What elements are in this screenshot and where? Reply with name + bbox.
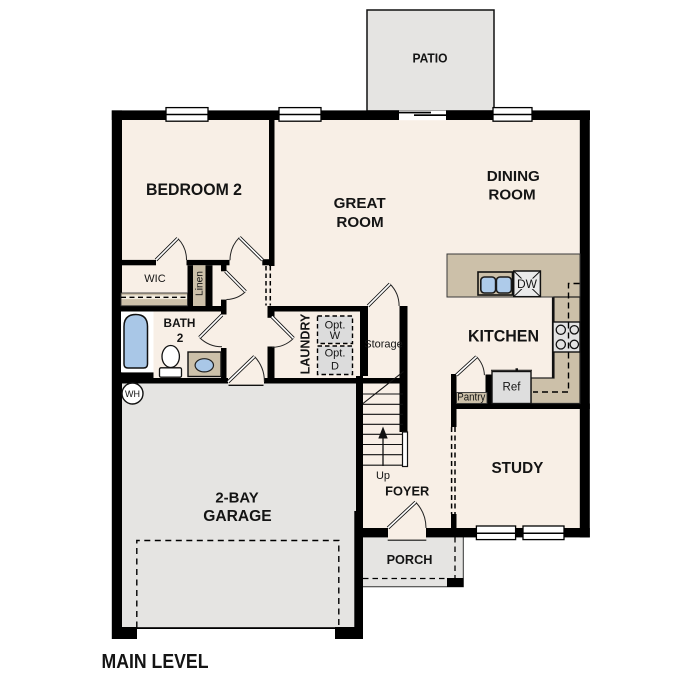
svg-text:2-BAY: 2-BAY — [215, 491, 258, 507]
svg-text:Ref: Ref — [503, 382, 522, 394]
svg-text:Linen: Linen — [194, 271, 205, 296]
svg-text:Up: Up — [376, 470, 390, 482]
svg-text:PATIO: PATIO — [413, 52, 448, 66]
svg-text:FOYER: FOYER — [385, 484, 429, 499]
svg-text:STUDY: STUDY — [491, 460, 543, 477]
svg-text:MAIN LEVEL: MAIN LEVEL — [102, 651, 209, 673]
svg-text:ROOM: ROOM — [488, 187, 535, 204]
svg-text:Pantry: Pantry — [457, 392, 486, 404]
svg-text:2: 2 — [177, 331, 184, 345]
svg-text:WH: WH — [125, 389, 140, 399]
svg-text:Opt.: Opt. — [325, 348, 346, 360]
svg-text:DW: DW — [517, 277, 538, 291]
svg-text:BEDROOM 2: BEDROOM 2 — [146, 181, 242, 199]
svg-text:BATH: BATH — [164, 316, 196, 330]
svg-text:ROOM: ROOM — [336, 214, 383, 231]
svg-text:WIC: WIC — [144, 273, 165, 285]
svg-text:GARAGE: GARAGE — [203, 508, 271, 525]
svg-text:DINING: DINING — [487, 168, 540, 185]
svg-text:D: D — [331, 361, 339, 373]
svg-text:KITCHEN: KITCHEN — [468, 328, 539, 346]
svg-text:GREAT: GREAT — [334, 195, 387, 212]
svg-text:Storage: Storage — [364, 339, 403, 351]
svg-text:LAUNDRY: LAUNDRY — [299, 313, 313, 374]
svg-text:PORCH: PORCH — [387, 553, 433, 567]
svg-text:W: W — [330, 330, 341, 342]
